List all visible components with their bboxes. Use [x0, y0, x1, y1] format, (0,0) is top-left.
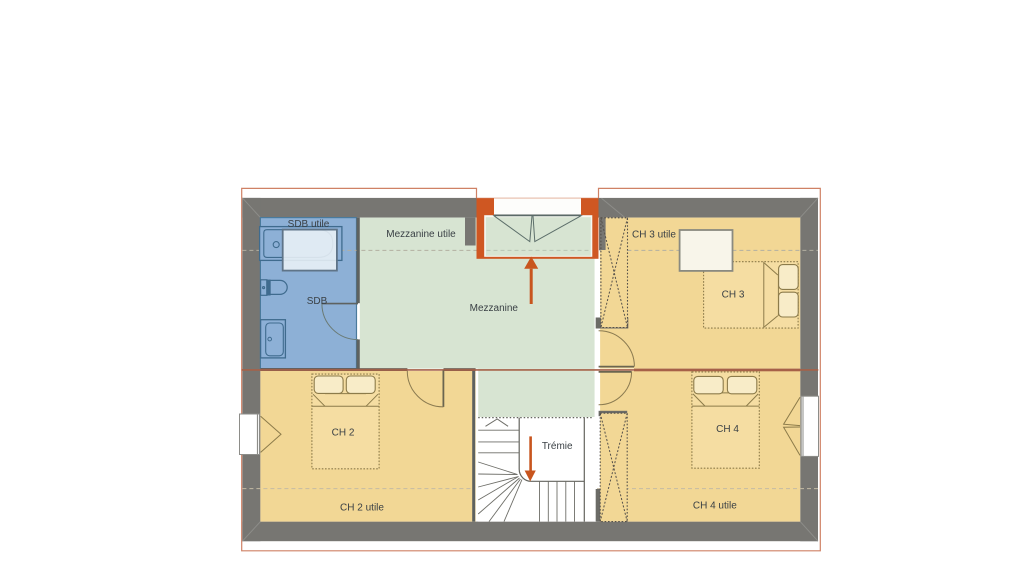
svg-text:CH 3 utile: CH 3 utile [632, 229, 676, 240]
svg-text:Trémie: Trémie [542, 441, 573, 452]
svg-text:SDB utile: SDB utile [288, 219, 330, 230]
svg-text:Mezzanine utile: Mezzanine utile [386, 229, 456, 240]
svg-text:CH 4 utile: CH 4 utile [693, 501, 737, 512]
svg-text:CH 2 utile: CH 2 utile [340, 503, 384, 514]
svg-text:SDB: SDB [307, 296, 328, 307]
svg-text:CH 4: CH 4 [716, 424, 739, 435]
svg-text:CH 3: CH 3 [722, 289, 745, 300]
svg-text:Mezzanine: Mezzanine [470, 303, 519, 314]
svg-text:CH 2: CH 2 [332, 428, 355, 439]
